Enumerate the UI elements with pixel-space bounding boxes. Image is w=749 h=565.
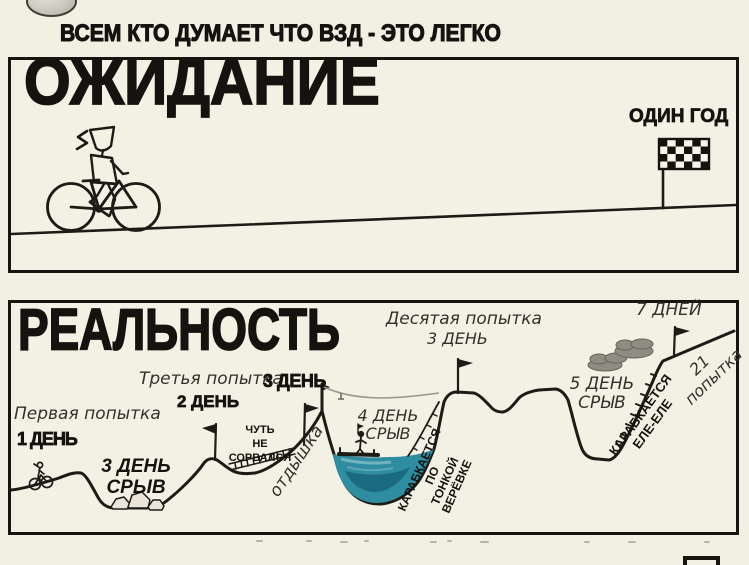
cutoff-box [683, 556, 720, 565]
expectation-heading: ОЖИДАНИЕ [24, 50, 380, 113]
cloud-icon [588, 339, 653, 371]
ground-line [11, 205, 736, 234]
speck [584, 541, 590, 543]
label-tenth-attempt: Десятая попытка [386, 310, 542, 329]
label-day3-fail: 3 ДЕНЬ СРЫВ [94, 457, 178, 499]
label-third-attempt: Третья попытка [139, 370, 283, 389]
checkered-flag-icon [659, 139, 709, 208]
speck [340, 541, 348, 543]
meme-poster: ВСЕМ КТО ДУМАЕТ ЧТО ВЗД - ЭТО ЛЕГКО [0, 0, 749, 565]
speck [628, 541, 636, 543]
label-day-1: 1 ДЕНЬ [17, 429, 77, 450]
speck [480, 541, 489, 543]
speck [256, 540, 263, 542]
speck [704, 541, 710, 543]
speck [364, 540, 369, 542]
label-day-3-hand: 3 ДЕНЬ [427, 330, 488, 348]
label-first-attempt: Первая попытка [14, 405, 161, 424]
speck [430, 541, 437, 543]
speck [447, 540, 452, 542]
cyclist-icon [48, 127, 160, 231]
page-title: ВСЕМ КТО ДУМАЕТ ЧТО ВЗД - ЭТО ЛЕГКО [60, 2, 561, 48]
label-day5-fail: 5 ДЕНЬ СРЫВ [566, 375, 638, 413]
label-day4-fail: 4 ДЕНЬ СРЫВ [352, 407, 424, 443]
reality-heading: РЕАЛЬНОСТЬ [18, 303, 340, 358]
label-day-2: 2 ДЕНЬ [177, 392, 239, 412]
finish-label: ОДИН ГОД [629, 106, 728, 128]
label-7-days: 7 ДНЕЙ [636, 301, 702, 320]
speck [306, 540, 312, 542]
label-day-3-bold: 3 ДЕНЬ [263, 371, 326, 392]
